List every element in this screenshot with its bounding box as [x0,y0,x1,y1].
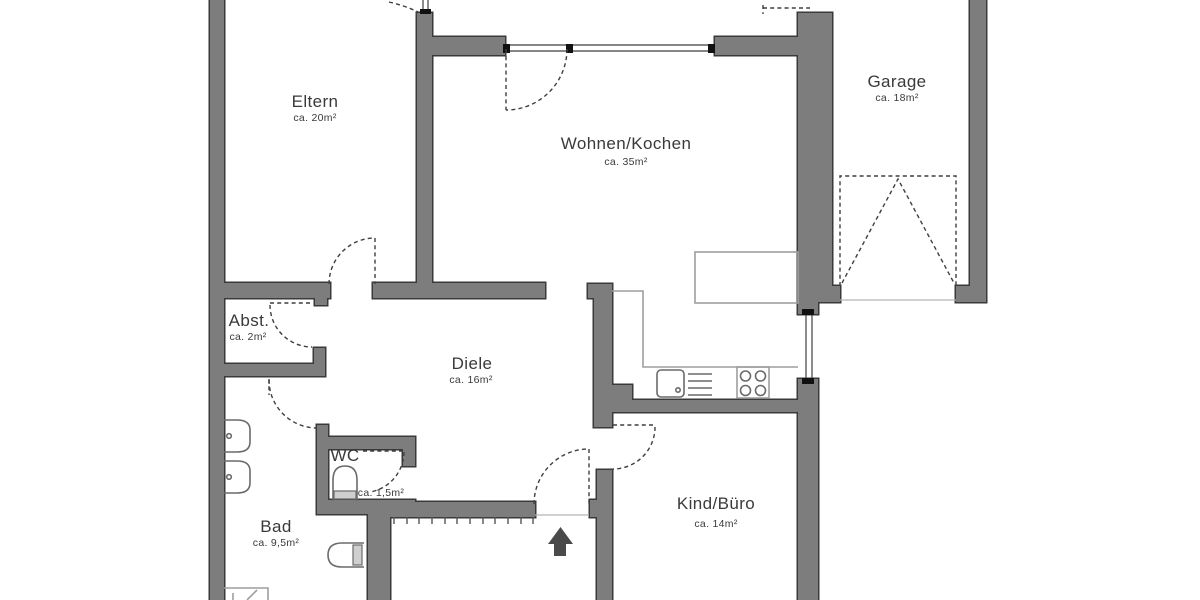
garage-door-icon [840,176,956,300]
room-name-abstellraum: Abst. [229,311,270,330]
toilet-wc-icon [333,466,357,501]
room-label-garage: Garage ca. 18m² [867,72,926,104]
room-name-wc: WC [330,446,359,465]
room-area-diele: ca. 16m² [449,374,492,386]
kitchen-sink-icon [657,370,712,397]
door-swing-top-cut-fragment [389,2,810,14]
shower-icon [224,588,268,600]
room-label-abstellraum: Abst. ca. 2m² [229,311,270,343]
room-area-wc: ca. 1,5m² [358,487,405,499]
door-swing-bad [269,379,317,428]
entrance-arrow-icon [548,527,573,556]
room-label-eltern: Eltern ca. 20m² [292,92,339,124]
room-label-bad: Bad ca. 9,5m² [253,517,300,549]
sink-bad-1-icon [224,420,250,452]
window-kitchen-right-icon [802,309,814,384]
room-area-kind-buero: ca. 14m² [694,518,737,530]
room-name-diele: Diele [452,354,493,373]
window-eltern-top-cut-icon [420,0,431,14]
room-name-bad: Bad [260,517,291,536]
room-area-garage: ca. 18m² [875,92,918,104]
door-swing-entrance [534,449,589,504]
door-swing-abstellraum [270,303,312,347]
kitchen-counter [612,252,798,367]
room-area-eltern: ca. 20m² [293,112,336,124]
room-label-kind-buero: Kind/Büro ca. 14m² [677,494,755,530]
door-swing-kind-buero [613,425,655,469]
room-area-bad: ca. 9,5m² [253,537,300,549]
sink-bad-2-icon [224,461,250,493]
room-name-kind-buero: Kind/Büro [677,494,755,513]
door-swing-wc [363,451,404,492]
toilet-bad-icon [328,543,364,567]
room-area-abstellraum: ca. 2m² [229,331,266,343]
floor-plan-svg: Eltern ca. 20m² Wohnen/Kochen ca. 35m² G… [0,0,1200,600]
room-label-diele: Diele ca. 16m² [449,354,492,386]
room-area-wohnen-kochen: ca. 35m² [604,156,647,168]
floor-plan: Eltern ca. 20m² Wohnen/Kochen ca. 35m² G… [0,0,1200,600]
door-swing-eltern [329,238,375,284]
door-swing-wohnen-terrace [506,49,567,110]
stove-icon [737,367,769,398]
room-name-garage: Garage [867,72,926,91]
room-label-wohnen-kochen: Wohnen/Kochen ca. 35m² [561,134,692,168]
room-name-eltern: Eltern [292,92,339,111]
room-name-wohnen-kochen: Wohnen/Kochen [561,134,692,153]
window-wohnen-top-icon [503,44,715,53]
